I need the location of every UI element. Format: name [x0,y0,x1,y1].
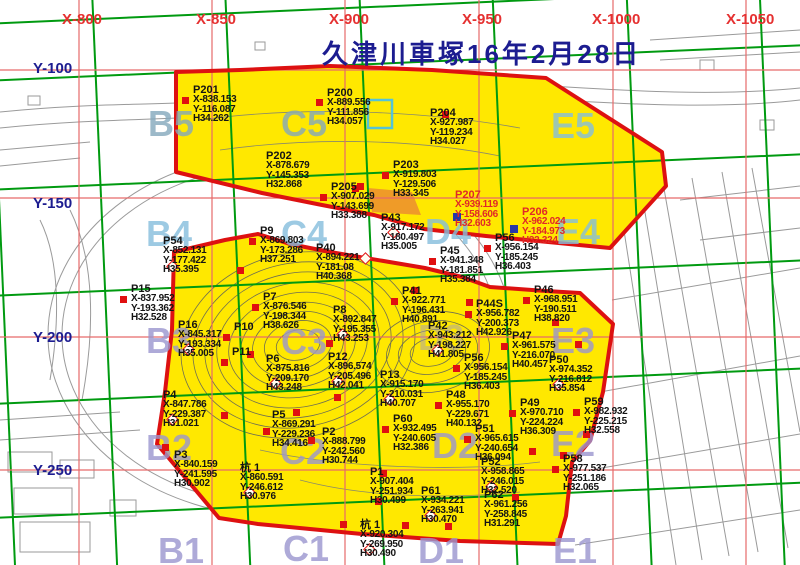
survey-marker-square-icon [382,426,389,433]
survey-marker-square-icon [162,444,169,451]
survey-point-label: P6X-875.816Y-209.170H43.248 [266,354,309,393]
cyan-feature [368,100,392,128]
survey-point-value: H35.384 [440,275,483,285]
survey-point-label: P16X-845.317Y-193.334H35.005 [178,320,221,359]
axis-label-y: Y-150 [33,195,72,212]
survey-marker-square-icon [573,409,580,416]
zone-label-b1: B1 [158,533,204,565]
survey-point-label: P207X-939.119Y-158.606H32.603 [455,190,498,229]
survey-point-value: H36.403 [495,262,538,272]
survey-point-label: P62X-961.256Y-258.845H31.291 [484,490,527,529]
survey-marker-square-icon [182,97,189,104]
survey-point-value: H43.248 [266,383,309,393]
survey-point-label: P10 [234,322,254,332]
survey-marker-square-icon [120,296,127,303]
survey-marker-square-icon [252,304,259,311]
survey-point-value: H34.027 [430,137,473,147]
axis-label-y: Y-100 [33,60,72,77]
survey-marker-square-icon [320,194,327,201]
survey-point-label: P201X-838.153Y-116.087H34.262 [193,85,236,124]
survey-point-value: H34.057 [327,117,370,127]
survey-point-label: P40X-894.221Y-181.08H40.368 [316,243,359,282]
survey-point-value: H30.470 [421,515,464,525]
survey-point-value: H30.902 [174,479,217,489]
survey-marker-square-icon [509,410,516,417]
survey-point-value: H31.291 [484,519,527,529]
survey-point-name: P11 [232,347,251,357]
survey-point-value: H42.041 [328,381,371,391]
survey-point-label: P50X-974.352Y-216.812H35.854 [549,355,592,394]
survey-marker-square-icon [334,394,341,401]
survey-point-label: P9X-869.803Y-173.286H37.251 [260,226,303,265]
survey-marker-square-icon [466,299,473,306]
survey-point-label: P204X-927.987Y-119.234H34.027 [430,108,473,147]
survey-point-label: 杭 1X-860.591Y-246.612H30.976 [240,463,283,502]
survey-point-label: P43X-917.172Y-180.497H35.005 [381,213,424,252]
survey-marker-square-icon [340,521,347,528]
survey-point-label: P200X-889.556Y-111.856H34.057 [327,88,370,127]
survey-point-value: H36.309 [520,427,563,437]
survey-point-value: H31.021 [163,419,206,429]
survey-point-value: H35.395 [163,265,206,275]
survey-point-label: P56X-956.154Y-185.245H36.403 [495,233,538,272]
survey-marker-square-icon [316,99,323,106]
survey-marker-square-icon [435,402,442,409]
survey-map: 久津川車塚16年2月28日 X-800X-850X-900X-950X-1000… [0,0,800,565]
survey-marker-square-icon [249,238,256,245]
survey-point-value: H32.386 [393,443,436,453]
survey-marker-square-icon [501,343,508,350]
survey-marker-square-icon [464,436,471,443]
survey-marker-square-icon [237,267,244,274]
axis-label-x: X-950 [462,11,502,28]
survey-point-label: P202X-878.679Y-145.353H32.868 [266,151,309,190]
survey-point-label: P56X-956.154Y-185.245H36.403 [464,353,507,392]
survey-point-label: P59X-982.932Y-225.215H32.558 [584,397,627,436]
survey-marker-square-icon [429,258,436,265]
survey-marker-square-icon [221,359,228,366]
survey-point-value: H30.744 [322,456,365,466]
zone-label-c5: C5 [281,106,327,142]
survey-marker-square-icon [484,245,491,252]
survey-point-value: H34.262 [193,114,236,124]
survey-marker-square-icon [453,365,460,372]
survey-point-value: H35.005 [381,242,424,252]
axis-label-x: X-900 [329,11,369,28]
survey-marker-square-icon [223,334,230,341]
survey-point-value: H35.005 [178,349,221,359]
survey-point-value: H38.626 [263,321,306,331]
survey-marker-square-icon [523,297,530,304]
survey-point-label: P2X-888.799Y-242.560H30.744 [322,427,365,466]
zone-label-c1: C1 [283,531,329,565]
survey-point-value: H32.868 [266,180,309,190]
survey-point-label: P11 [232,347,251,357]
survey-point-value: H38.820 [534,314,577,324]
survey-point-value: H40.368 [316,272,359,282]
survey-point-label: P58X-977.537Y-251.186H32.065 [563,454,606,493]
survey-point-label: P54X-852.131Y-177.422H35.395 [163,236,206,275]
survey-point-value: H30.490 [360,549,403,559]
survey-point-label: P13X-915.170Y-210.031H40.707 [380,370,423,409]
zone-label-e1: E1 [553,533,597,565]
survey-point-label: P46X-968.951Y-190.511H38.820 [534,285,577,324]
survey-point-value: H43.253 [333,334,376,344]
survey-point-label: P45X-941.348Y-181.851H35.384 [440,246,483,285]
survey-point-label: P49X-970.710Y-224.224H36.309 [520,398,563,437]
survey-point-label: P60X-932.495Y-240.605H32.386 [393,414,436,453]
axis-label-y: Y-200 [33,329,72,346]
survey-point-label: P3X-840.159Y-241.595H30.902 [174,450,217,489]
survey-point-value: H33.345 [393,189,436,199]
survey-point-label: P205X-907.029Y-143.699H33.388 [331,182,374,221]
survey-point-label: P4X-847.786Y-229.387H31.021 [163,390,206,429]
survey-point-value: H32.528 [131,313,174,323]
axis-label-x: X-850 [196,11,236,28]
survey-marker-square-icon [221,412,228,419]
survey-point-value: H32.065 [563,483,606,493]
axis-label-x: X-1000 [592,11,640,28]
zone-label-b5: B5 [148,106,194,142]
survey-point-value: H35.854 [549,384,592,394]
survey-marker-square-icon [263,428,270,435]
survey-point-value: H34.416 [272,439,315,449]
survey-point-label: P1X-907.404Y-251.934H30.499 [370,467,413,506]
axis-label-x: X-800 [62,11,102,28]
survey-marker-square-icon [382,172,389,179]
survey-point-label: P15X-837.952Y-193.362H32.528 [131,284,174,323]
page-title: 久津川車塚16年2月28日 [322,34,641,71]
survey-point-label: P12X-896.574Y-205.496H42.041 [328,352,371,391]
survey-point-label: P8X-892.847Y-195.355H43.253 [333,305,376,344]
zone-label-d1: D1 [418,533,464,565]
survey-point-label: P7X-876.546Y-198.344H38.626 [263,292,306,331]
survey-point-value: H32.558 [584,426,627,436]
survey-marker-square-icon [326,340,333,347]
survey-marker-square-icon [575,341,582,348]
survey-point-value: H30.976 [240,492,283,502]
axis-label-x: X-1050 [726,11,774,28]
survey-marker-square-icon [529,448,536,455]
zone-label-e5: E5 [551,108,595,144]
survey-point-label: P5X-869.291Y-229.236H34.416 [272,410,315,449]
survey-point-value: H33.388 [331,211,374,221]
survey-marker-square-icon [465,311,472,318]
survey-point-label: P203X-919.803Y-129.506H33.345 [393,160,436,199]
survey-point-value: H37.251 [260,255,303,265]
survey-point-label: 杭 1X-920.304Y-269.950H30.490 [360,520,403,559]
survey-point-value: H30.499 [370,496,413,506]
zone-label-d2: D2 [432,428,478,464]
axis-label-y: Y-250 [33,462,72,479]
survey-point-label: P41X-922.771Y-196.431H40.891 [402,286,445,325]
survey-marker-square-icon [391,298,398,305]
survey-point-name: P10 [234,322,254,332]
survey-point-label: P61X-934.221Y-263.941H30.470 [421,486,464,525]
survey-point-value: H32.603 [455,219,498,229]
survey-point-value: H40.707 [380,399,423,409]
survey-marker-square-icon [552,466,559,473]
